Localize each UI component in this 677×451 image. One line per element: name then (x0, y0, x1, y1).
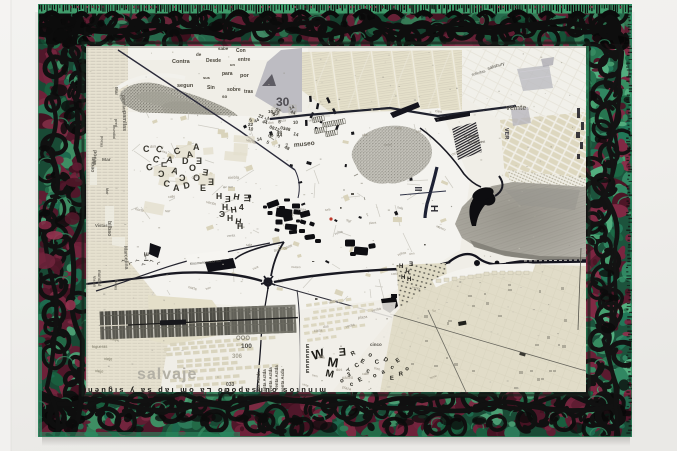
svg-text:sala: sala (325, 207, 331, 212)
svg-text:Mar: Mar (102, 157, 111, 163)
svg-text:calle: calle (362, 372, 369, 376)
svg-text:ㄷ: ㄷ (160, 160, 168, 170)
svg-text:Sin: Sin (207, 85, 215, 91)
svg-text:O: O (189, 163, 196, 173)
svg-text:cien: cien (435, 108, 443, 114)
svg-text:Vistas: Vistas (95, 223, 108, 228)
svg-text:4: 4 (239, 202, 244, 212)
svg-text:so: so (222, 94, 228, 99)
svg-text:norte: norte (384, 143, 392, 147)
svg-text:Ǝ: Ǝ (208, 177, 214, 187)
svg-text:dos: dos (323, 324, 329, 329)
svg-text:tras: tras (244, 89, 253, 95)
svg-text:Desde: Desde (206, 58, 221, 64)
svg-text:306: 306 (232, 354, 243, 360)
svg-text:viejo: viejo (110, 336, 119, 342)
svg-text:sobre: sobre (227, 87, 241, 93)
svg-text:H: H (216, 191, 222, 201)
svg-text:10: 10 (293, 120, 299, 125)
svg-text:entre: entre (238, 57, 250, 63)
svg-text:calle: calle (168, 195, 176, 199)
svg-text:pamllas: pamllas (121, 111, 127, 131)
svg-text:para: para (222, 71, 233, 77)
svg-text:mundial: mundial (97, 270, 102, 286)
svg-text:10: 10 (268, 109, 274, 114)
svg-text:venta: venta (227, 233, 236, 238)
svg-text:pamllas: pamllas (121, 95, 127, 113)
svg-text:dos: dos (336, 367, 342, 372)
svg-text:de: de (196, 52, 202, 57)
svg-text:viejo: viejo (95, 368, 104, 374)
svg-text:higueras: higueras (92, 344, 107, 349)
svg-text:22: 22 (248, 122, 254, 127)
svg-text:paseo: paseo (342, 375, 354, 380)
svg-text:museo: museo (291, 265, 301, 269)
svg-text:dos: dos (150, 143, 157, 149)
svg-text:el diario: el diario (464, 133, 480, 139)
svg-text:H: H (428, 205, 439, 212)
svg-text:ㅅ: ㅅ (345, 367, 351, 374)
svg-text:Ǝ: Ǝ (196, 156, 202, 166)
svg-text:A: A (193, 142, 200, 152)
svg-text:H: H (237, 221, 243, 231)
svg-text:sala: sala (246, 243, 252, 247)
svg-text:100: 100 (241, 343, 252, 350)
svg-text:ヨ: ヨ (243, 193, 252, 203)
svg-text:sur: sur (165, 208, 171, 213)
svg-text:alta: alta (362, 133, 368, 137)
svg-text:sala: sala (395, 126, 402, 130)
svg-text:plaza: plaza (298, 207, 307, 212)
svg-text:Ǝ: Ǝ (338, 346, 346, 359)
svg-text:E: E (200, 183, 206, 193)
svg-text:un: un (230, 62, 235, 67)
svg-text:casa: casa (391, 271, 399, 275)
svg-text:H: H (407, 277, 411, 283)
svg-text:por: por (240, 73, 250, 79)
svg-text:cien: cien (409, 251, 415, 256)
svg-text:dos: dos (268, 121, 274, 125)
svg-text:viejo: viejo (104, 356, 113, 361)
svg-text:lunes: lunes (113, 280, 119, 290)
svg-text:Mar: Mar (114, 87, 119, 95)
svg-text:plaza: plaza (278, 118, 287, 123)
svg-text:av. sur: av. sur (223, 185, 234, 189)
svg-text:Mar: Mar (105, 188, 109, 195)
svg-text:Contra: Contra (172, 59, 191, 65)
svg-text:Con: Con (236, 48, 246, 54)
svg-text:sus: sus (203, 75, 211, 80)
svg-text:VER: VER (503, 128, 509, 140)
svg-text:Vistas: Vistas (92, 276, 97, 287)
svg-text:Ǝ⌐I: Ǝ⌐I (142, 252, 148, 262)
svg-text:salvaje: salvaje (137, 366, 197, 383)
svg-text:veinte: veinte (506, 105, 526, 112)
svg-text:H: H (399, 264, 403, 270)
svg-text:bilbao: bilbao (89, 157, 96, 173)
svg-text:plaza: plaza (369, 220, 377, 225)
svg-text:A: A (173, 183, 180, 193)
svg-text:OOO: OOO (236, 336, 250, 342)
svg-text:E: E (390, 376, 394, 382)
svg-text:H: H (401, 275, 405, 281)
svg-text:H: H (227, 213, 233, 223)
svg-text:casa: casa (314, 328, 323, 333)
svg-text:cinco: cinco (370, 342, 382, 347)
svg-text:mundial: mundial (112, 125, 116, 139)
svg-text:segun: segun (177, 83, 194, 89)
svg-text:pocas: pocas (99, 136, 105, 147)
svg-text:Ǝ: Ǝ (409, 262, 413, 268)
svg-text:niebla: niebla (228, 175, 240, 180)
